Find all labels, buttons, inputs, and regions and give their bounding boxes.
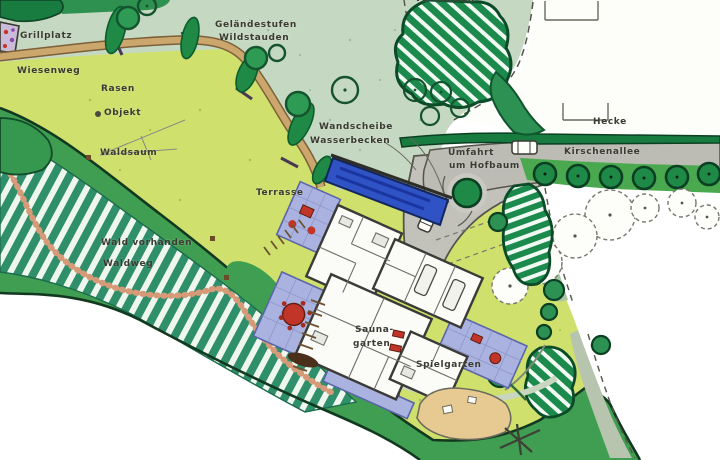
site-plan-canvas [0,0,720,460]
label-wandscheibe: Wandscheibe [319,122,393,133]
label-gelaendestufen: Geländestufen [215,20,297,31]
label-kirschenallee: Kirschenallee [564,147,640,158]
label-wasserbecken: Wasserbecken [310,136,390,147]
label-wildstauden: Wildstauden [219,33,289,44]
objekt-marker-icon [95,111,101,117]
label-wiesenweg: Wiesenweg [17,66,80,77]
label-saunagarten-2: garten [353,339,390,350]
hofbaum-tree-icon [453,179,481,207]
grillplatz-paving [0,22,19,53]
label-objekt: Objekt [104,108,141,119]
label-rasen: Rasen [101,84,135,95]
label-wald-vorhanden: Wald vorhanden [101,238,192,249]
label-terrasse: Terrasse [256,188,304,199]
label-saunagarten-1: Sauna- [355,325,394,336]
label-grillplatz: Grillplatz [20,31,72,42]
label-spielgarten: Spielgarten [416,360,482,371]
car-icon [512,141,537,154]
garden-site-plan: Grillplatz Wiesenweg Rasen Objekt Waldsa… [0,0,720,460]
label-umfahrt: Umfahrt [448,148,494,159]
label-waldweg: Waldweg [103,259,153,270]
label-waldsaum: Waldsaum [100,148,157,159]
label-hecke: Hecke [593,117,627,128]
label-vorhanden-clipped: vorhanden [415,0,475,5]
label-um-hofbaum: um Hofbaum [449,161,520,172]
